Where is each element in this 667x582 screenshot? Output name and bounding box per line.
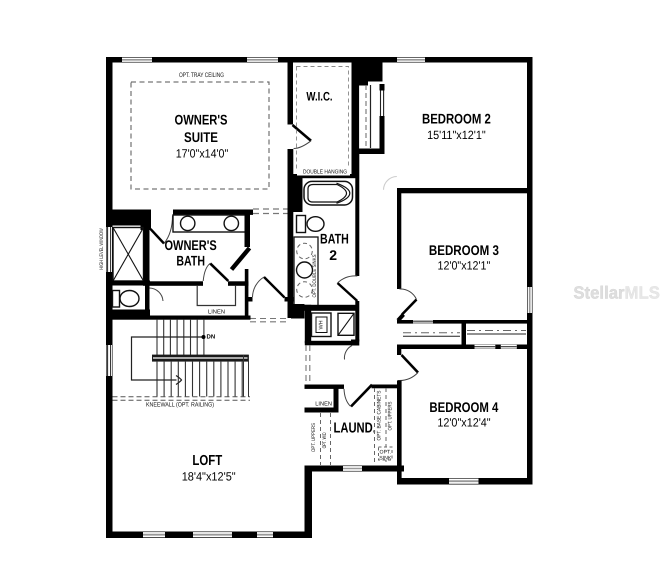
- svg-text:OWNER'S: OWNER'S: [164, 237, 216, 253]
- svg-text:StellarMLS: StellarMLS: [573, 283, 660, 303]
- svg-text:LAUND.: LAUND.: [334, 421, 376, 437]
- svg-text:17'0"x14'0": 17'0"x14'0": [176, 147, 229, 161]
- svg-text:OPT. W/D: OPT. W/D: [322, 432, 328, 448]
- svg-text:OPT. UPPERS: OPT. UPPERS: [387, 401, 393, 430]
- svg-text:SUITE: SUITE: [184, 129, 218, 145]
- svg-text:WH: WH: [319, 320, 325, 329]
- svg-text:LINEN: LINEN: [208, 310, 225, 316]
- svg-text:SINK: SINK: [379, 455, 392, 461]
- svg-text:15'11"x12'1": 15'11"x12'1": [427, 128, 486, 142]
- svg-text:DN: DN: [207, 334, 216, 341]
- svg-text:KNEEWALL (OPT. RAILING): KNEEWALL (OPT. RAILING): [146, 402, 214, 409]
- svg-text:DOUBLE HANGING: DOUBLE HANGING: [303, 169, 347, 176]
- svg-text:BEDROOM 3: BEDROOM 3: [429, 242, 499, 258]
- svg-text:BEDROOM 2: BEDROOM 2: [422, 111, 491, 127]
- svg-text:BATH: BATH: [176, 253, 205, 269]
- svg-text:OWNER'S: OWNER'S: [175, 112, 228, 128]
- svg-text:12'0"x12'1": 12'0"x12'1": [438, 259, 491, 273]
- svg-text:12'0"x12'4": 12'0"x12'4": [437, 416, 490, 430]
- svg-text:18'4"x12'5": 18'4"x12'5": [182, 470, 236, 484]
- svg-text:2: 2: [329, 247, 337, 263]
- svg-text:OPT. UPPERS: OPT. UPPERS: [311, 423, 317, 452]
- svg-text:BATH: BATH: [320, 231, 349, 247]
- svg-text:OPT. BASE CABINETS: OPT. BASE CABINETS: [377, 390, 383, 440]
- svg-text:BEDROOM 4: BEDROOM 4: [429, 399, 498, 415]
- svg-text:OPT. TRAY CEILING: OPT. TRAY CEILING: [179, 72, 224, 79]
- svg-text:LOFT: LOFT: [192, 453, 222, 469]
- svg-text:HIGH LEVEL WINDOW: HIGH LEVEL WINDOW: [99, 228, 105, 270]
- svg-text:W.I.C.: W.I.C.: [306, 90, 332, 104]
- svg-text:LINEN: LINEN: [315, 401, 332, 407]
- svg-text:OPT. DOUBLE SINKS: OPT. DOUBLE SINKS: [312, 254, 318, 297]
